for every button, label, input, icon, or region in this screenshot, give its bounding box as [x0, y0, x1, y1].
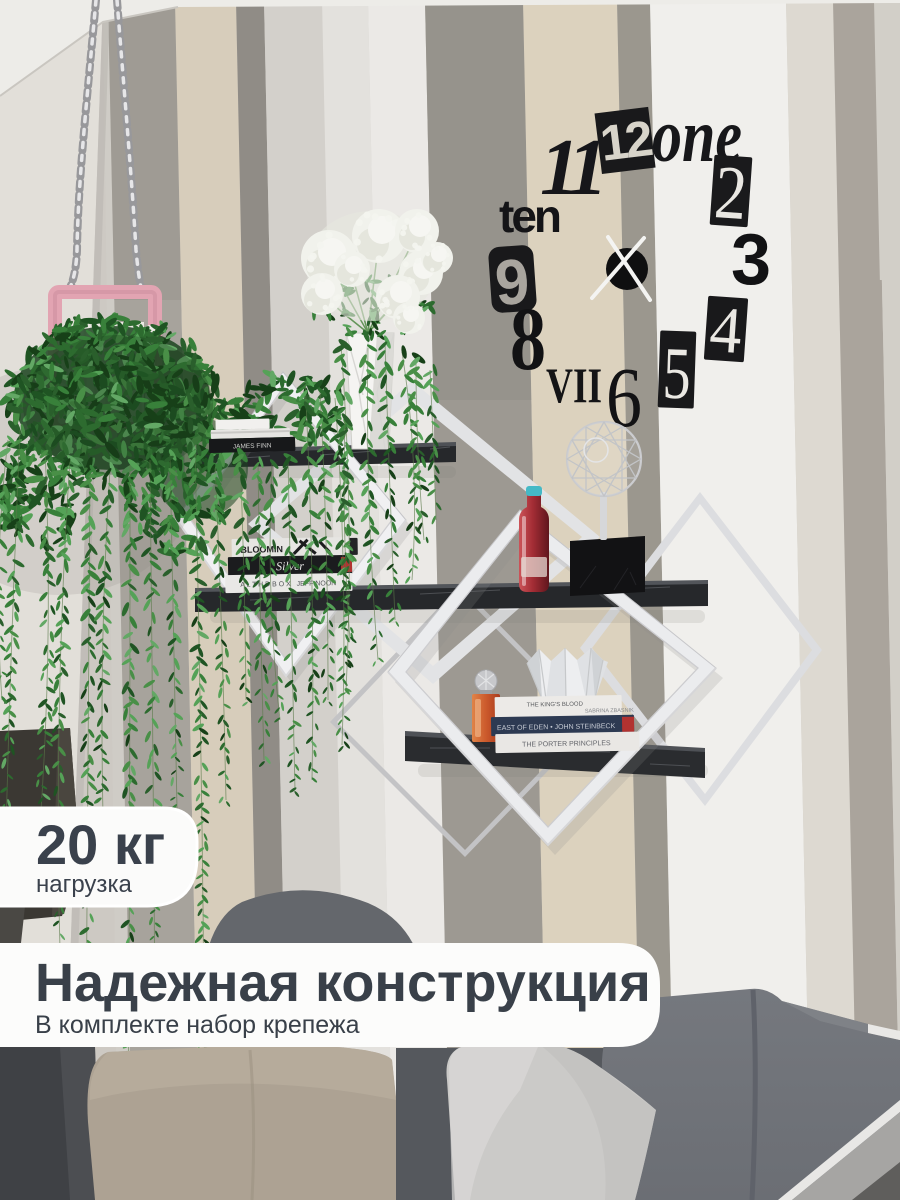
svg-text:3: 3	[731, 220, 771, 300]
svg-text:Надежная конструкция: Надежная конструкция	[35, 953, 651, 1013]
svg-text:SABRINA ZBASNIK: SABRINA ZBASNIK	[585, 708, 634, 715]
svg-text:VII: VII	[546, 357, 602, 413]
svg-text:5: 5	[661, 333, 692, 416]
svg-text:20 кг: 20 кг	[36, 813, 165, 876]
svg-text:12: 12	[597, 110, 654, 172]
svg-text:4: 4	[707, 293, 744, 368]
svg-text:8: 8	[510, 290, 546, 389]
svg-text:ten: ten	[499, 190, 560, 242]
svg-text:нагрузка: нагрузка	[36, 871, 132, 898]
svg-text:В комплекте набор крепежа: В комплекте набор крепежа	[35, 1011, 360, 1039]
svg-text:THE KING'S BLOOD: THE KING'S BLOOD	[527, 702, 584, 709]
